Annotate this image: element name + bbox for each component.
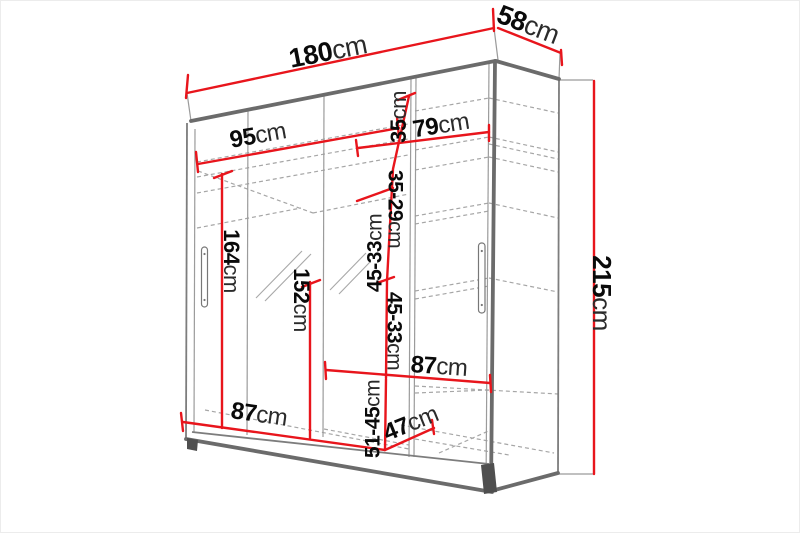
wardrobe-line-art: [1, 1, 800, 533]
wardrobe-panels: [187, 28, 560, 491]
wardrobe-dimension-diagram: 180cm 58cm 215cm 95cm 79cm 164cm 152cm 3…: [0, 0, 800, 533]
